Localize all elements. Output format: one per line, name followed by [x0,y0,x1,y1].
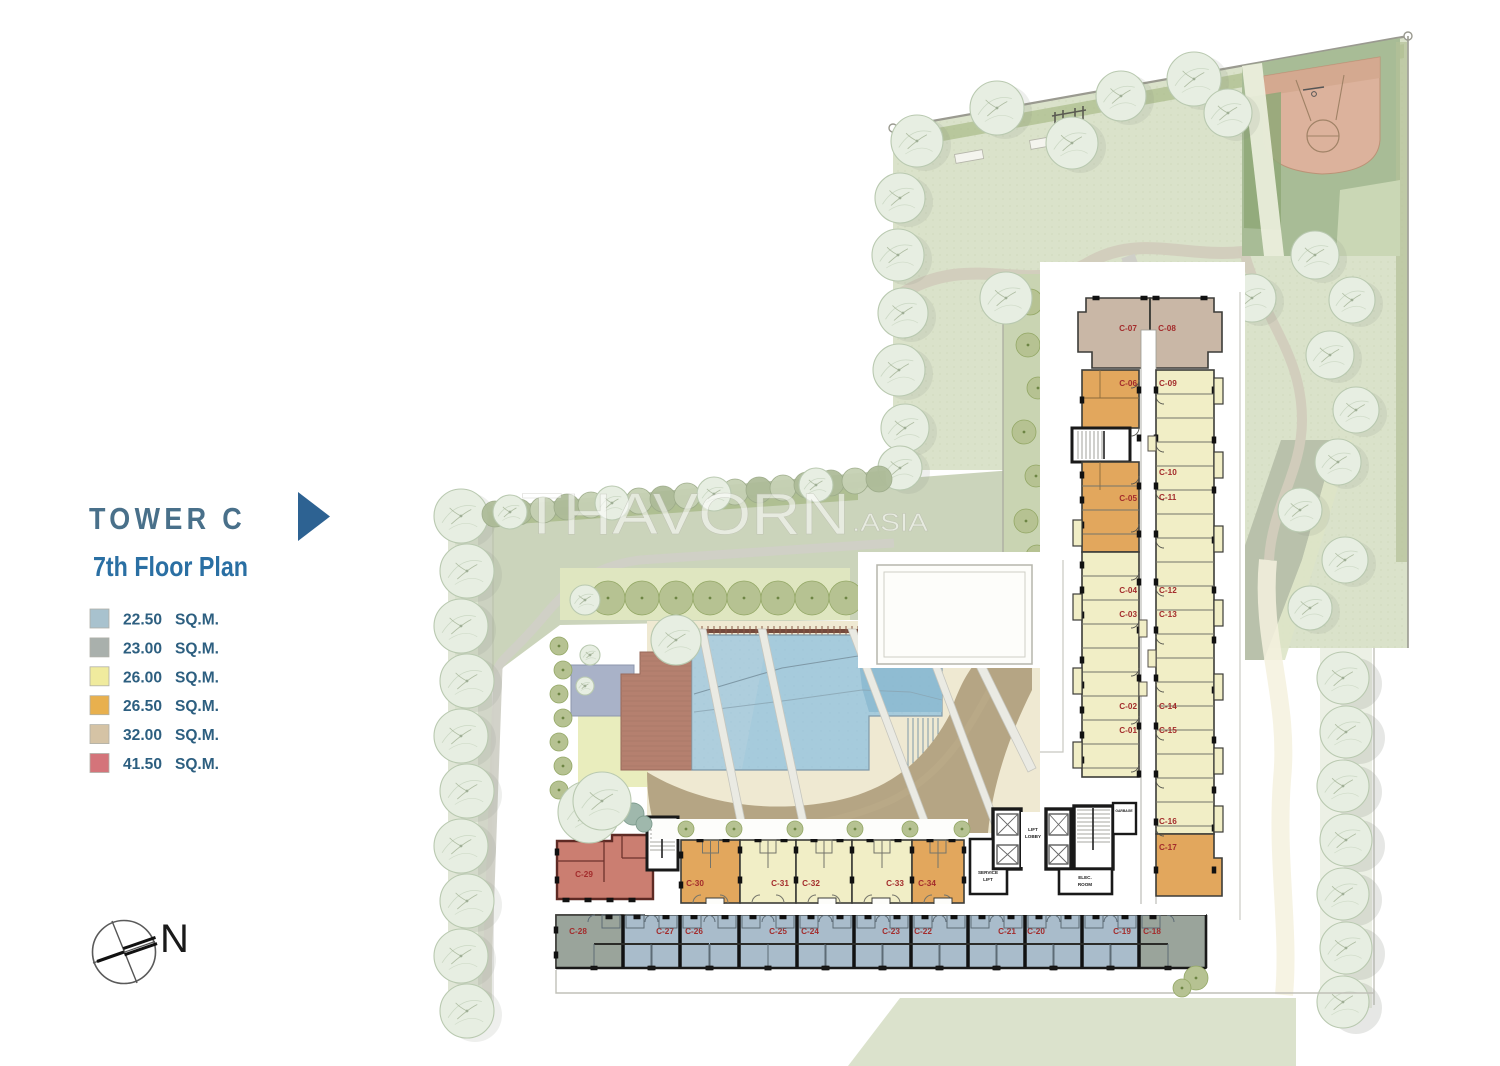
svg-text:TOWER C: TOWER C [89,501,246,536]
svg-text:SERVICE: SERVICE [978,870,998,875]
svg-text:C-28: C-28 [569,927,587,936]
svg-text:C-03: C-03 [1119,610,1137,619]
svg-text:C-13: C-13 [1159,610,1177,619]
svg-text:SQ.M.: SQ.M. [175,669,219,686]
svg-text:THAVORN: THAVORN [521,482,850,547]
svg-text:SQ.M.: SQ.M. [175,756,219,773]
svg-text:32.00: 32.00 [123,727,162,744]
svg-text:C-16: C-16 [1159,817,1177,826]
svg-text:N: N [160,917,189,961]
svg-text:LIFT: LIFT [1028,827,1038,832]
svg-text:22.50: 22.50 [123,612,162,629]
svg-text:C-34: C-34 [918,879,936,888]
svg-text:GARBAGE: GARBAGE [1115,809,1133,813]
svg-text:7th Floor Plan: 7th Floor Plan [93,551,248,582]
svg-text:.ASIA: .ASIA [852,509,928,537]
svg-text:C-29: C-29 [575,870,593,879]
svg-text:C-02: C-02 [1119,702,1137,711]
svg-text:26.00: 26.00 [123,669,162,686]
svg-text:C-33: C-33 [886,879,904,888]
svg-text:C-09: C-09 [1159,379,1177,388]
svg-text:C-06: C-06 [1119,379,1137,388]
svg-text:C-17: C-17 [1159,843,1177,852]
svg-text:ELEC.: ELEC. [1078,875,1092,880]
svg-text:C-30: C-30 [686,879,704,888]
svg-text:SQ.M.: SQ.M. [175,640,219,657]
svg-text:41.50: 41.50 [123,756,162,773]
svg-text:LIFT: LIFT [983,877,993,882]
svg-text:C-31: C-31 [771,879,789,888]
svg-text:LOBBY: LOBBY [1025,834,1041,839]
svg-text:26.50: 26.50 [123,698,162,715]
svg-text:ROOM: ROOM [1078,882,1092,887]
svg-text:C-10: C-10 [1159,468,1177,477]
svg-text:SQ.M.: SQ.M. [175,612,219,629]
svg-text:C-11: C-11 [1159,493,1177,502]
svg-text:C-05: C-05 [1119,494,1137,503]
svg-text:SQ.M.: SQ.M. [175,727,219,744]
svg-text:C-15: C-15 [1159,726,1177,735]
svg-text:C-07: C-07 [1119,324,1137,333]
svg-text:C-12: C-12 [1159,586,1177,595]
svg-text:SQ.M.: SQ.M. [175,698,219,715]
svg-text:C-01: C-01 [1119,726,1137,735]
svg-text:C-08: C-08 [1158,324,1176,333]
svg-text:C-04: C-04 [1119,586,1137,595]
svg-text:23.00: 23.00 [123,640,162,657]
svg-text:C-14: C-14 [1159,702,1177,711]
svg-text:C-32: C-32 [802,879,820,888]
